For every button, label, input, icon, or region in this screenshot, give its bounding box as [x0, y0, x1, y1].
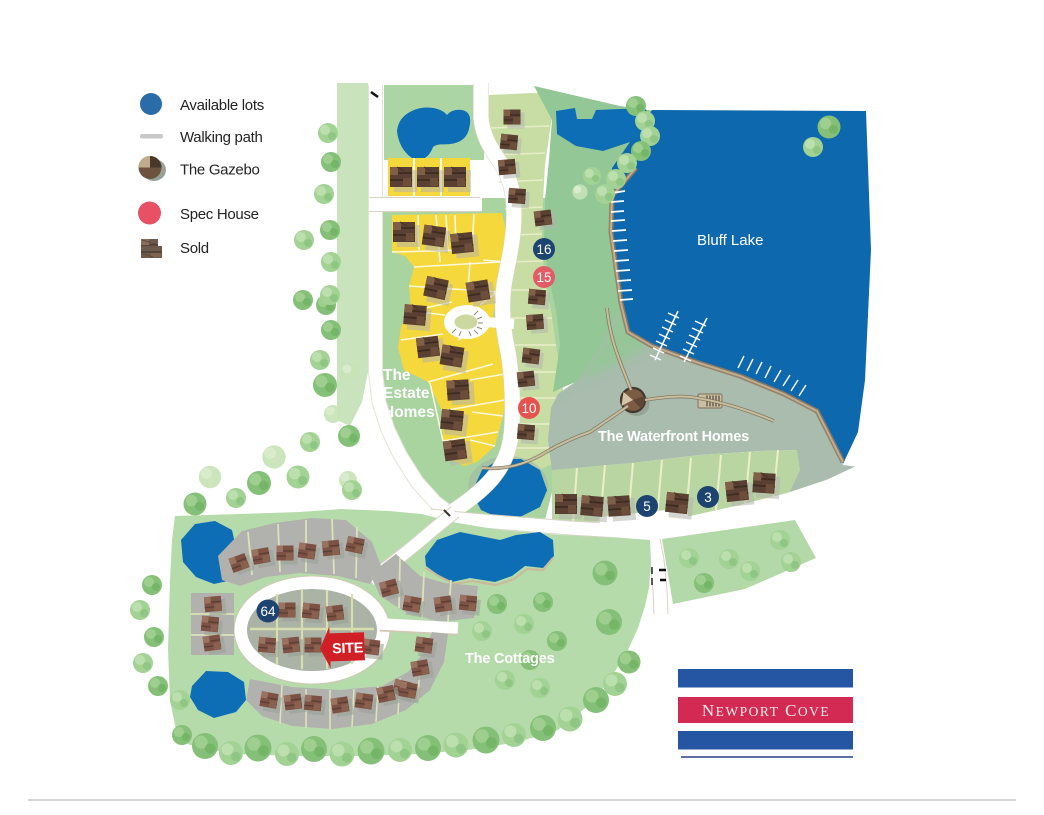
- svg-text:5: 5: [643, 499, 651, 514]
- svg-text:Homes: Homes: [383, 404, 435, 421]
- svg-text:Spec House: Spec House: [180, 206, 259, 223]
- svg-text:3: 3: [704, 490, 712, 505]
- svg-text:Available lots: Available lots: [180, 97, 264, 114]
- svg-text:10: 10: [521, 401, 536, 416]
- svg-text:SITE: SITE: [332, 640, 364, 657]
- svg-text:Bluff Lake: Bluff Lake: [697, 232, 763, 249]
- svg-text:Estate: Estate: [383, 385, 430, 402]
- svg-text:The Gazebo: The Gazebo: [180, 162, 260, 179]
- svg-text:NEWPORT COVE: NEWPORT COVE: [702, 701, 830, 720]
- svg-text:The Waterfront Homes: The Waterfront Homes: [598, 429, 749, 445]
- svg-text:15: 15: [536, 270, 551, 285]
- svg-text:The: The: [383, 367, 411, 384]
- svg-text:64: 64: [260, 604, 276, 619]
- svg-text:Walking path: Walking path: [180, 129, 263, 146]
- svg-text:The Cottages: The Cottages: [465, 651, 555, 667]
- svg-text:16: 16: [536, 242, 551, 257]
- svg-text:Sold: Sold: [180, 240, 209, 257]
